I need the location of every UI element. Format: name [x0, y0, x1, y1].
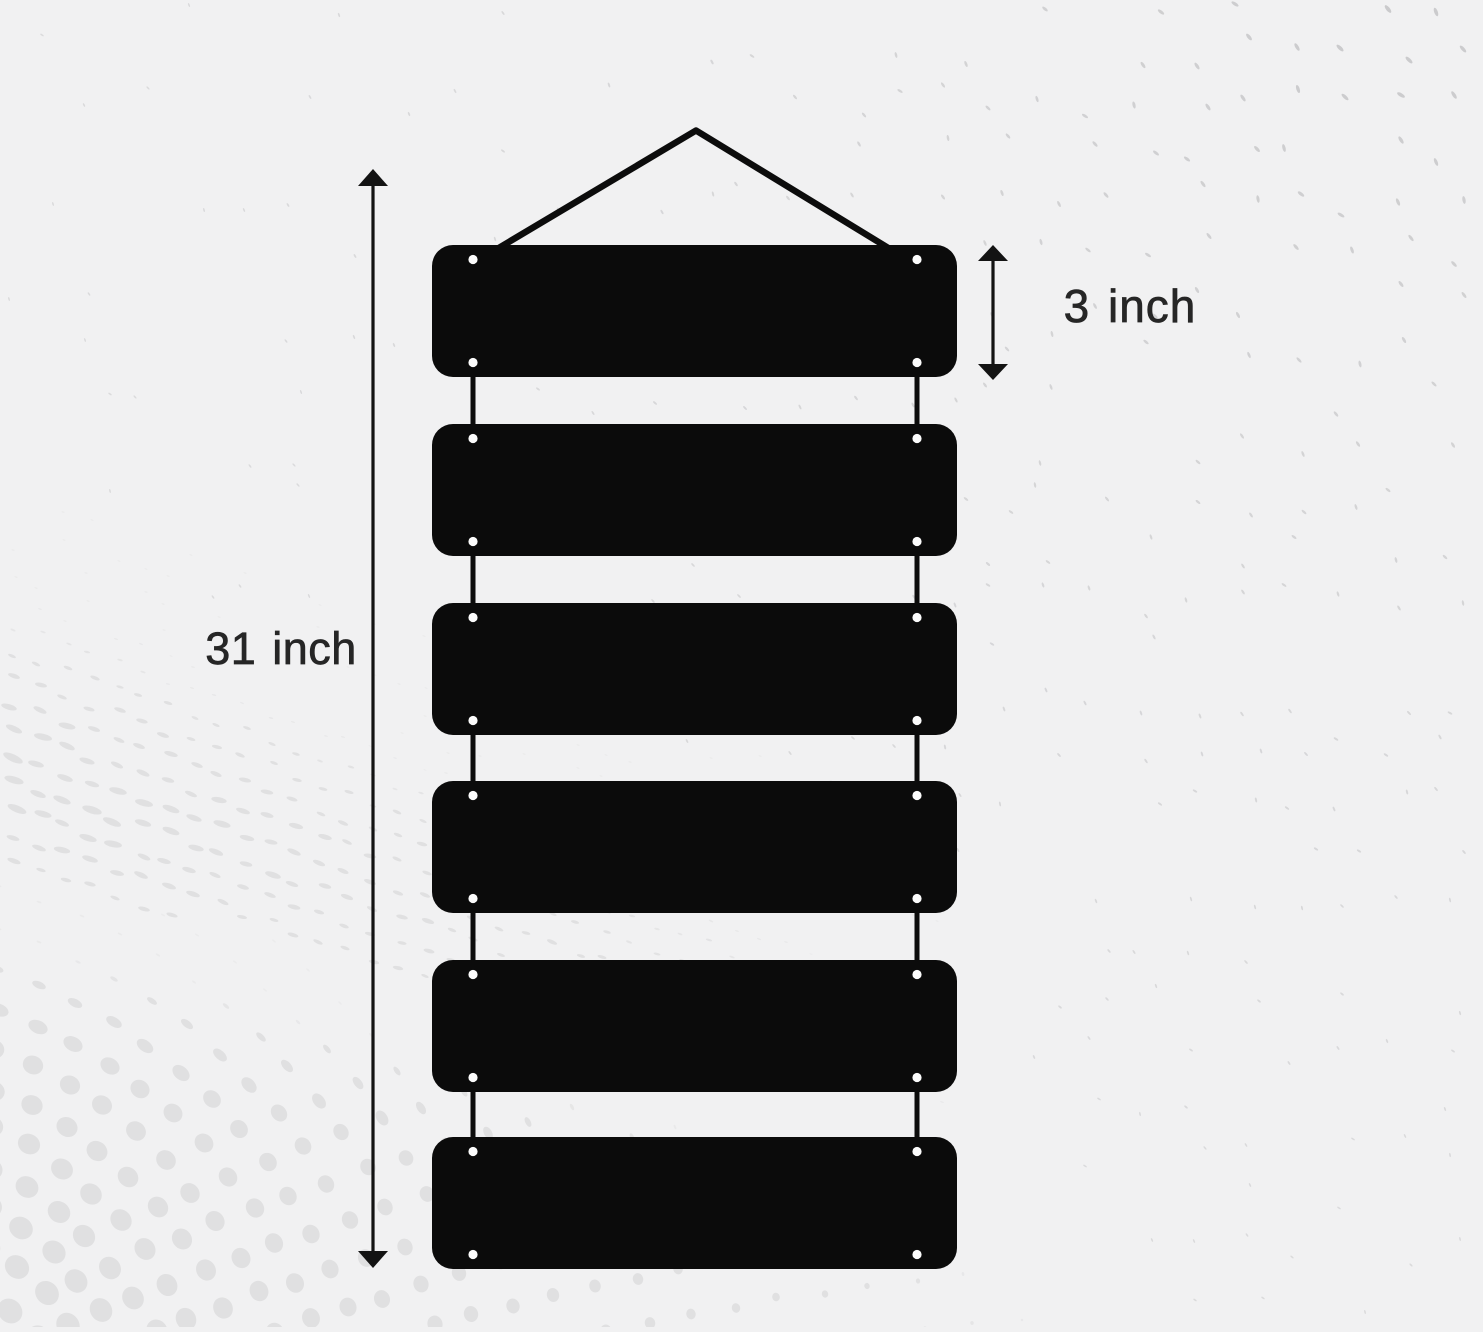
svg-text:3 inch: 3 inch — [1064, 280, 1197, 332]
svg-text:31 inch: 31 inch — [205, 623, 357, 674]
